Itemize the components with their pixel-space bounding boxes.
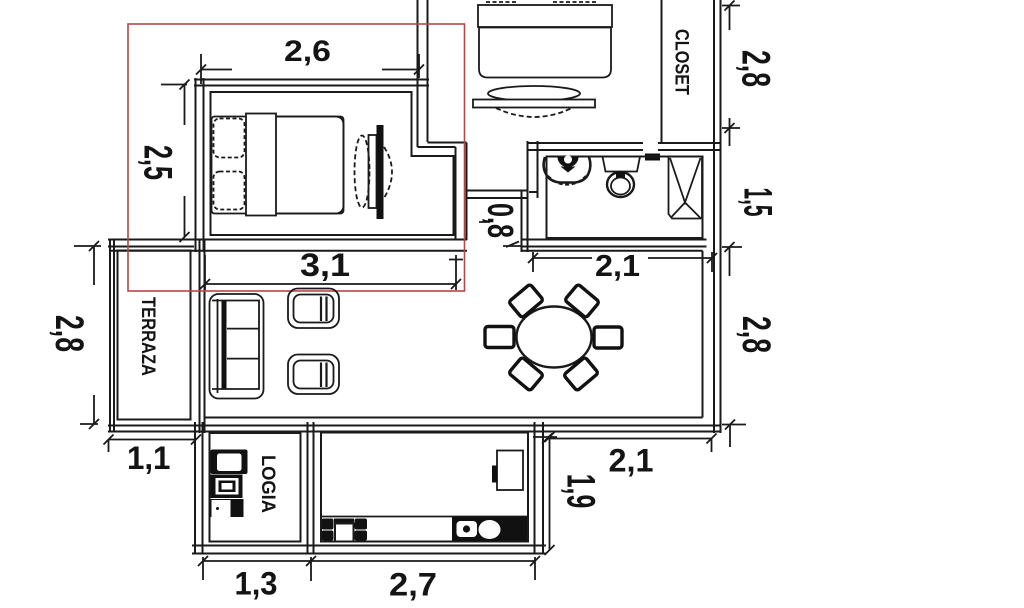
svg-text:2,1: 2,1 bbox=[595, 248, 640, 283]
svg-text:2,8: 2,8 bbox=[734, 50, 778, 87]
svg-text:2,7: 2,7 bbox=[389, 567, 437, 603]
svg-text:1,3: 1,3 bbox=[235, 566, 278, 602]
svg-text:2,1: 2,1 bbox=[609, 443, 654, 479]
svg-text:2,6: 2,6 bbox=[284, 35, 331, 68]
svg-text:TERRAZA: TERRAZA bbox=[137, 297, 158, 376]
svg-text:1,1: 1,1 bbox=[127, 440, 171, 476]
svg-text:2,5: 2,5 bbox=[136, 145, 180, 180]
svg-text:1,5: 1,5 bbox=[736, 188, 780, 217]
svg-text:CLOSET: CLOSET bbox=[671, 29, 692, 95]
svg-text:0,8: 0,8 bbox=[480, 203, 521, 238]
svg-text:2,8: 2,8 bbox=[734, 316, 778, 353]
svg-text:1,9: 1,9 bbox=[559, 474, 603, 509]
svg-text:3,1: 3,1 bbox=[300, 247, 350, 283]
svg-text:2,8: 2,8 bbox=[47, 315, 91, 352]
svg-text:LOGIA: LOGIA bbox=[257, 455, 278, 513]
